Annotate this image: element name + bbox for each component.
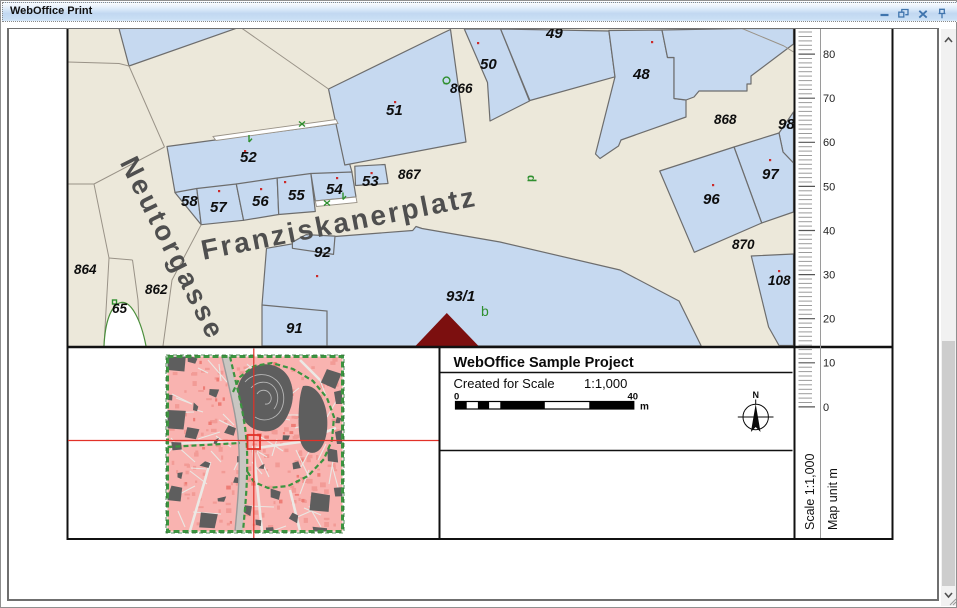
svg-text:98: 98 — [778, 116, 795, 133]
svg-text:0: 0 — [823, 402, 829, 414]
svg-text:0: 0 — [454, 392, 459, 403]
svg-text:96: 96 — [703, 191, 720, 208]
svg-text:50: 50 — [823, 181, 835, 193]
svg-text:50: 50 — [480, 56, 497, 73]
svg-text:52: 52 — [240, 149, 257, 166]
svg-text:60: 60 — [823, 137, 835, 149]
svg-text:40: 40 — [628, 392, 639, 403]
svg-text:866: 866 — [450, 81, 473, 96]
svg-text:868: 868 — [714, 112, 737, 127]
svg-text:WebOffice Sample Project: WebOffice Sample Project — [454, 355, 634, 371]
svg-text:51: 51 — [386, 102, 403, 119]
svg-text:30: 30 — [823, 270, 835, 282]
svg-text:b: b — [481, 303, 489, 319]
svg-text:70: 70 — [823, 93, 835, 105]
svg-text:65: 65 — [112, 301, 128, 316]
svg-text:92: 92 — [314, 244, 331, 261]
svg-text:m: m — [640, 402, 649, 413]
svg-text:870: 870 — [732, 237, 755, 252]
svg-text:40: 40 — [823, 225, 835, 237]
svg-text:1:1,000: 1:1,000 — [584, 376, 627, 391]
svg-text:48: 48 — [632, 66, 650, 83]
svg-text:Map unit m: Map unit m — [826, 468, 840, 530]
svg-text:867: 867 — [398, 167, 422, 182]
svg-text:p: p — [525, 175, 537, 182]
svg-text:53: 53 — [362, 173, 379, 190]
svg-text:108: 108 — [768, 273, 791, 288]
svg-text:Created for Scale: Created for Scale — [454, 376, 555, 391]
svg-text:56: 56 — [252, 193, 269, 210]
svg-text:91: 91 — [286, 320, 303, 337]
svg-text:54: 54 — [326, 181, 343, 198]
svg-text:58: 58 — [181, 193, 198, 210]
svg-text:97: 97 — [762, 166, 779, 183]
svg-text:80: 80 — [823, 49, 835, 61]
svg-text:55: 55 — [288, 187, 305, 204]
svg-text:20: 20 — [823, 314, 835, 326]
svg-text:49: 49 — [545, 29, 563, 42]
svg-text:862: 862 — [145, 282, 168, 297]
svg-text:864: 864 — [74, 262, 97, 277]
svg-text:N: N — [752, 390, 759, 400]
svg-text:93/1: 93/1 — [446, 288, 475, 305]
svg-text:Scale 1:1,000: Scale 1:1,000 — [803, 454, 817, 530]
svg-text:57: 57 — [210, 199, 227, 216]
svg-text:10: 10 — [823, 358, 835, 370]
